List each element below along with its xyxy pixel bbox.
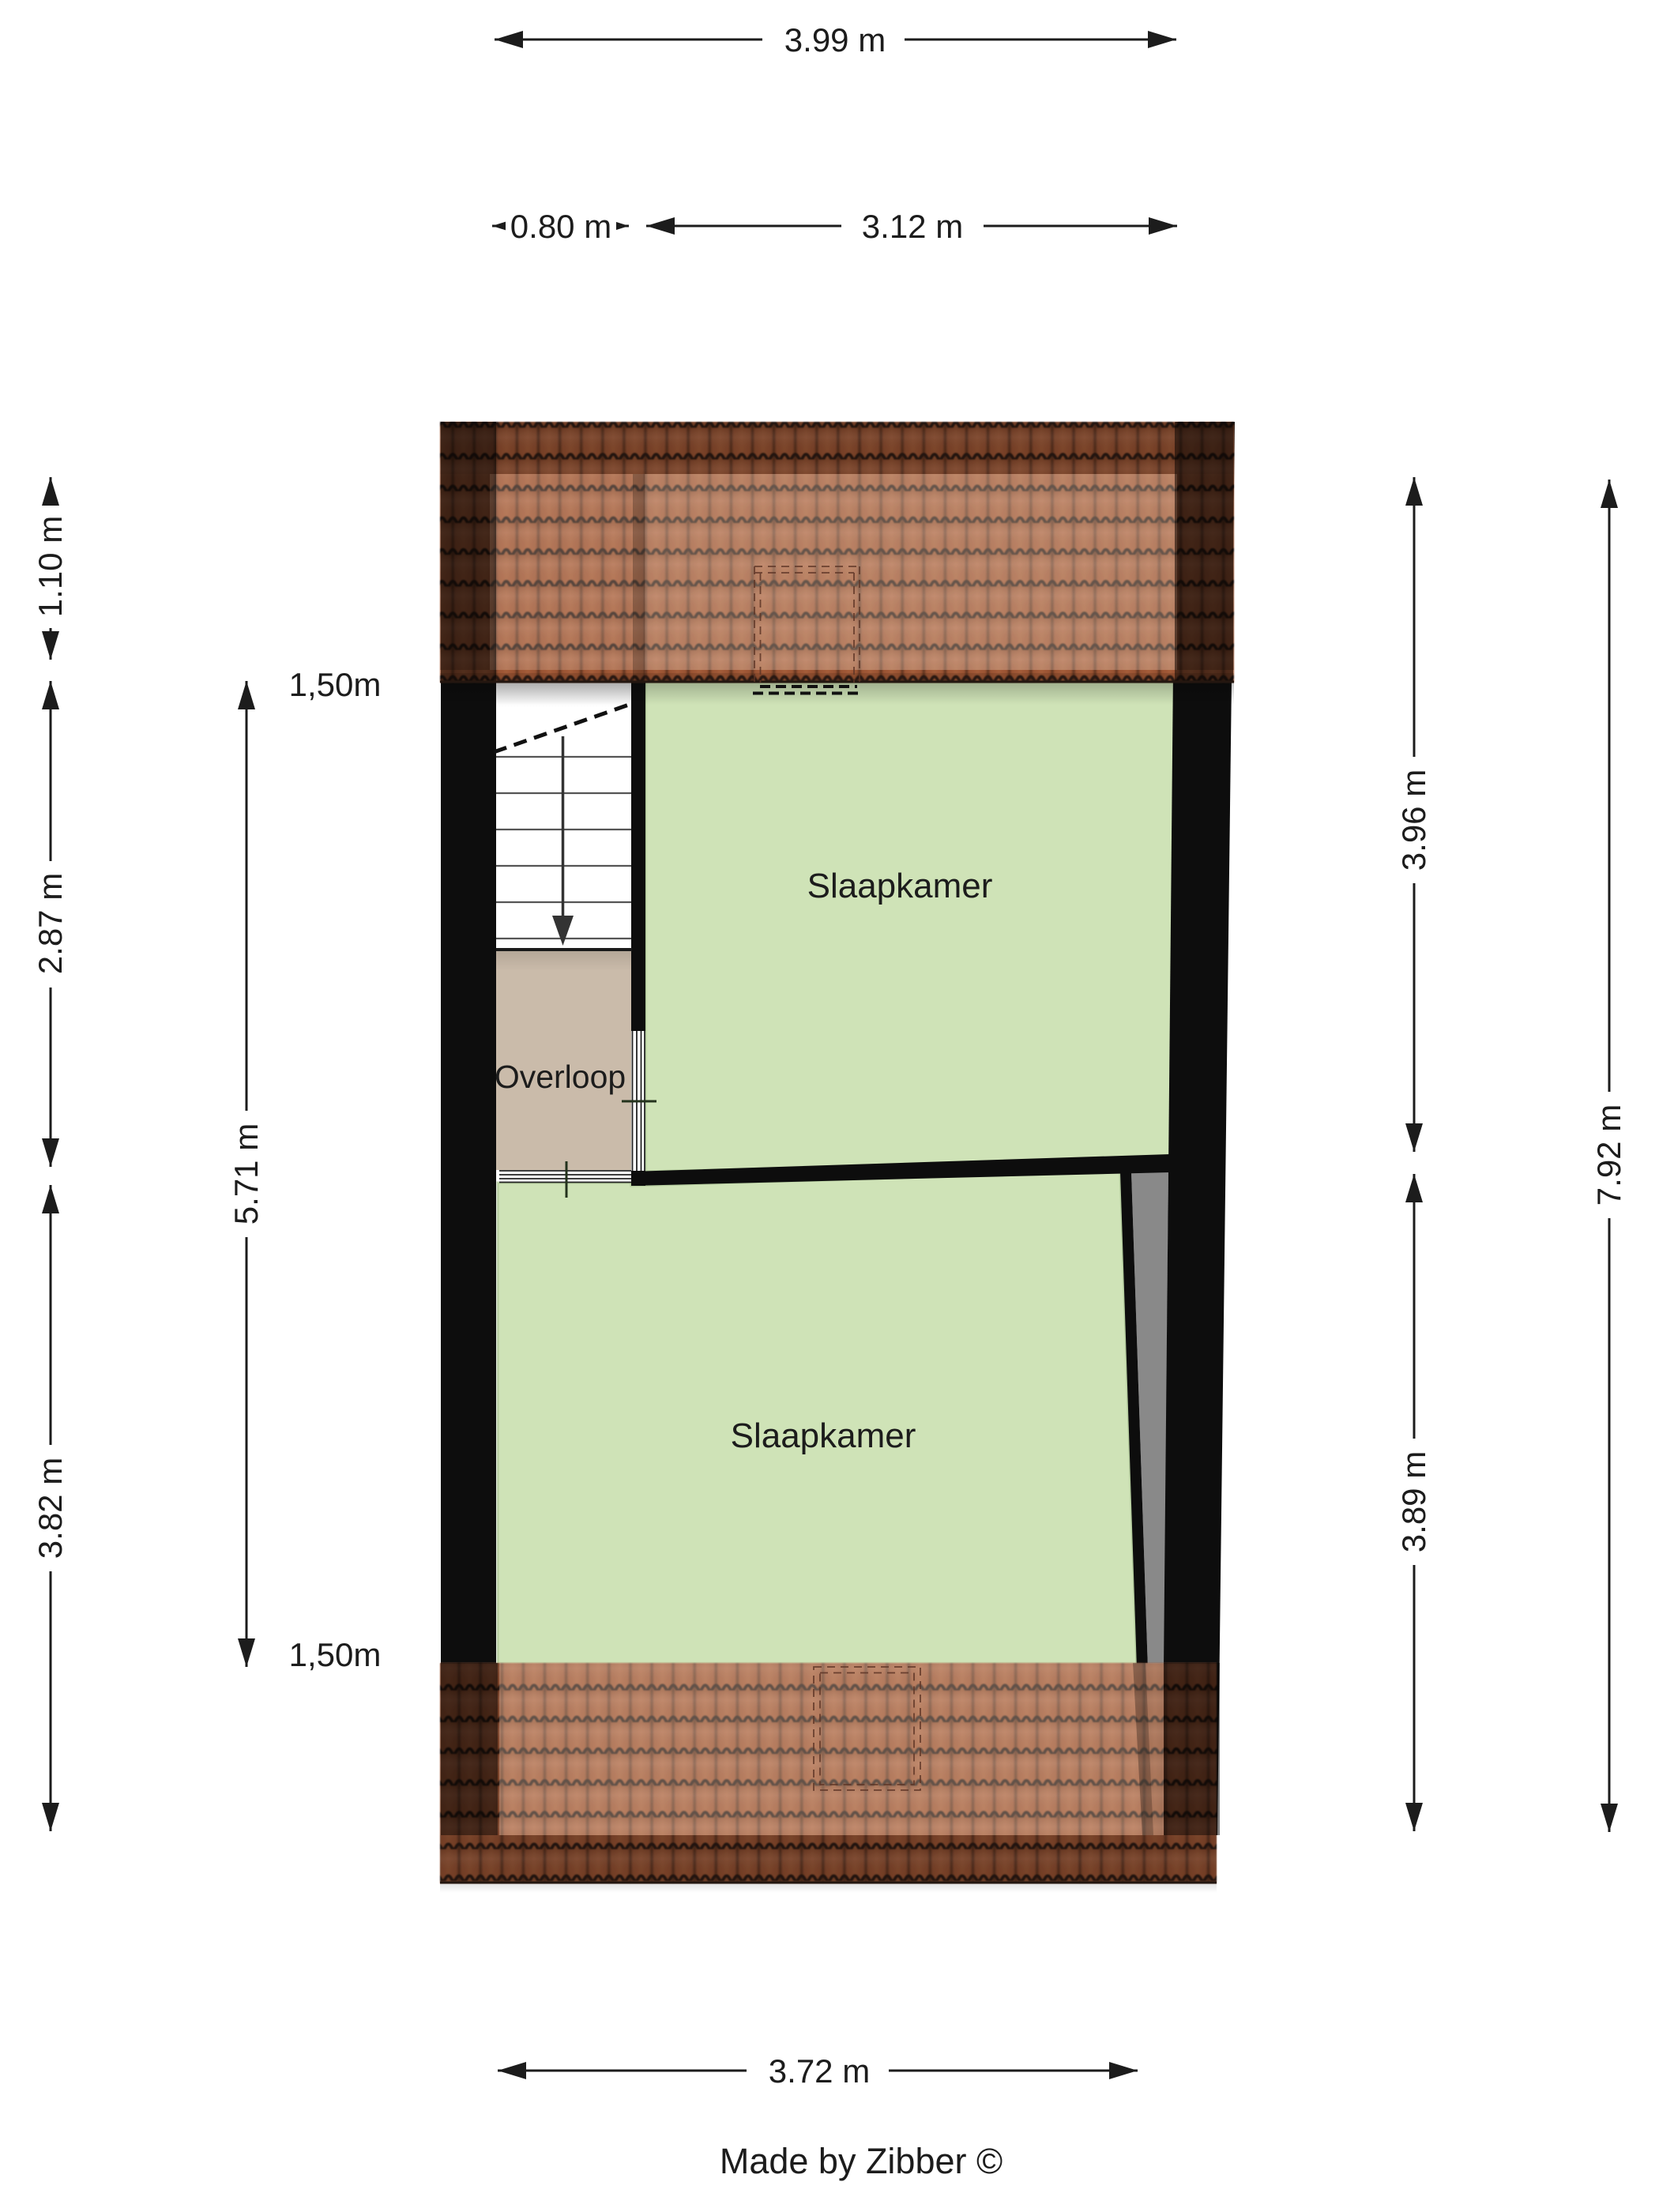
svg-text:3.89 m: 3.89 m — [1395, 1451, 1432, 1552]
svg-text:3.12 m: 3.12 m — [862, 208, 963, 245]
svg-text:1.10 m: 1.10 m — [32, 516, 69, 617]
svg-text:5.71 m: 5.71 m — [228, 1123, 265, 1224]
svg-text:1,50m: 1,50m — [289, 666, 382, 703]
svg-text:Made by Zibber ©: Made by Zibber © — [720, 2141, 1003, 2181]
svg-text:Slaapkamer: Slaapkamer — [807, 867, 993, 905]
svg-text:3.82 m: 3.82 m — [32, 1458, 69, 1559]
svg-text:3.99 m: 3.99 m — [784, 21, 886, 58]
svg-text:3.72 m: 3.72 m — [769, 2052, 870, 2090]
svg-text:7.92 m: 7.92 m — [1590, 1104, 1627, 1206]
svg-text:1,50m: 1,50m — [289, 1636, 382, 1673]
svg-text:3.96 m: 3.96 m — [1395, 769, 1432, 871]
svg-text:2.87 m: 2.87 m — [32, 873, 69, 974]
svg-text:Slaapkamer: Slaapkamer — [731, 1416, 916, 1455]
svg-text:Overloop: Overloop — [495, 1059, 626, 1095]
svg-text:0.80 m: 0.80 m — [510, 208, 611, 245]
